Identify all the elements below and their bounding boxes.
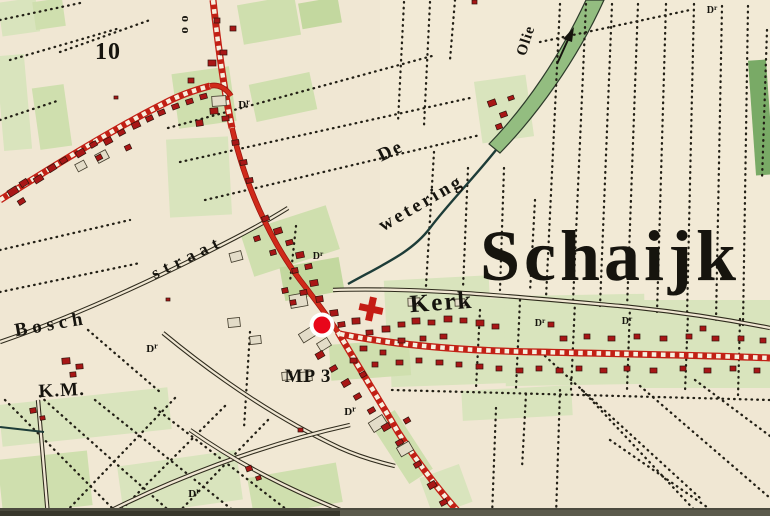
map-screenshot: 10DrDeweteringSchaijkKerkBoschstraatK.M.… (0, 0, 770, 516)
label-street-top: oo (176, 11, 191, 34)
label-parcel-number-10: 10 (95, 39, 121, 65)
label-mp3: MP 3 (285, 366, 332, 387)
label-kerk: Kerk (409, 287, 474, 318)
map-edge-band (0, 508, 770, 516)
label-schaijk: Schaijk (480, 216, 740, 296)
map-canvas[interactable]: 10DrDeweteringSchaijkKerkBoschstraatK.M.… (0, 0, 770, 516)
location-marker[interactable] (310, 313, 335, 338)
label-km: K.M. (38, 379, 85, 402)
